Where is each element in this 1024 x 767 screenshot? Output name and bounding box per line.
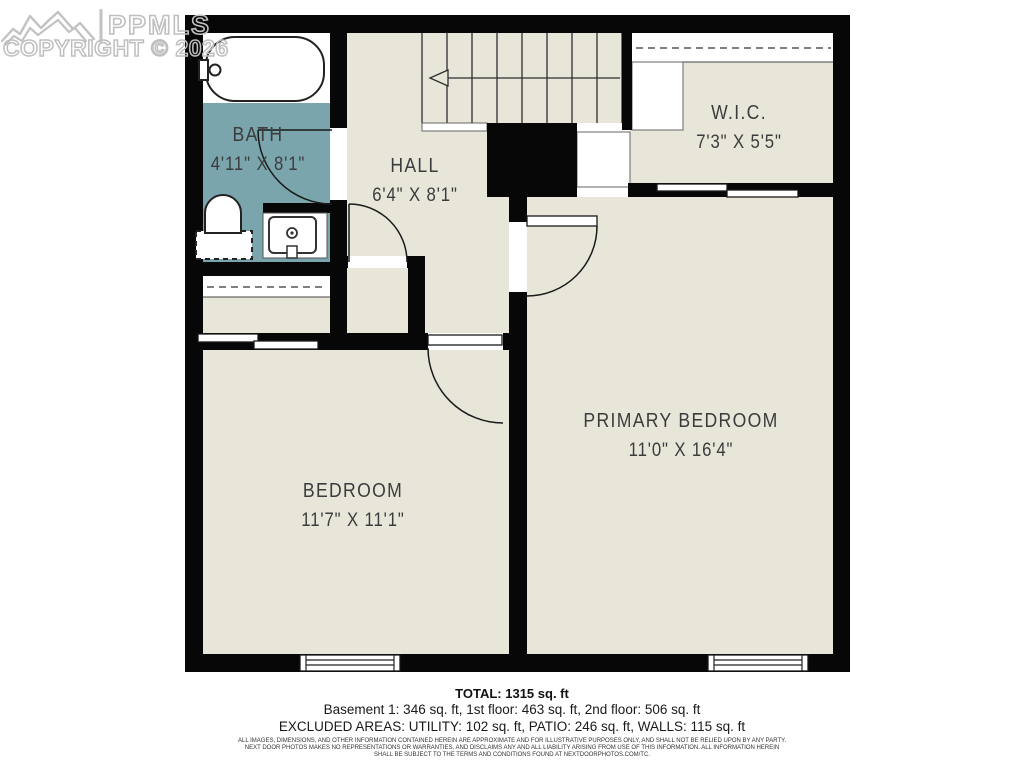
bedroom-name: BEDROOM xyxy=(301,477,404,506)
floorplan-page: BATH 4'11" X 8'1" HALL 6'4" X 8'1" W.I.C… xyxy=(0,0,1024,767)
stair-landing-box xyxy=(577,132,630,187)
wic-name: W.I.C. xyxy=(696,99,782,128)
bedroom-window xyxy=(300,655,400,671)
stair-cut-line xyxy=(422,123,487,131)
disclaimer-line-2: NEXT DOOR PHOTOS MAKES NO REPRESENTATION… xyxy=(0,745,1024,752)
bathtub-icon xyxy=(199,37,324,101)
sink-vanity-icon xyxy=(263,213,327,258)
disclaimer-line-1: ALL IMAGES, DIMENSIONS, AND OTHER INFORM… xyxy=(0,738,1024,745)
wic-bulkhead-box xyxy=(632,62,683,130)
room-label-bath: BATH 4'11" X 8'1" xyxy=(211,121,306,179)
wall-vanity-stub xyxy=(263,203,330,213)
primary-door-leaf xyxy=(527,216,597,226)
bedroom-door-leaf xyxy=(428,335,502,345)
bath-door-opening xyxy=(330,128,347,200)
wall-stairs-wic xyxy=(622,15,632,130)
room-label-wic: W.I.C. 7'3" X 5'5" xyxy=(696,99,782,157)
excluded-areas-line: EXCLUDED AREAS: UTILITY: 102 sq. ft, PAT… xyxy=(0,718,1024,735)
primary-bedroom-dimensions: 11'0" X 16'4" xyxy=(583,436,778,465)
room-label-hall: HALL 6'4" X 8'1" xyxy=(372,152,458,210)
total-area: TOTAL: 1315 sq. ft xyxy=(0,686,1024,701)
bedroom-dimensions: 11'7" X 11'1" xyxy=(301,506,404,535)
wall-top xyxy=(185,15,850,33)
wic-bypass-door-1 xyxy=(657,184,727,191)
closet-door-opening xyxy=(348,256,407,268)
wall-right xyxy=(833,15,850,672)
bedroom-closet-bypass-door-2 xyxy=(254,341,318,349)
area-summary: TOTAL: 1315 sq. ft Basement 1: 346 sq. f… xyxy=(0,686,1024,759)
primary-window xyxy=(708,655,808,671)
disclaimer-line-3: SHALL BE SUBJECT TO THE TERMS AND CONDIT… xyxy=(0,752,1024,759)
bath-dimensions: 4'11" X 8'1" xyxy=(211,150,306,179)
floorplan-drawing xyxy=(0,0,1024,767)
room-label-primary-bedroom: PRIMARY BEDROOM 11'0" X 16'4" xyxy=(583,407,778,465)
wic-bypass-door-2 xyxy=(727,190,798,197)
bedroom-closet-bypass-door-1 xyxy=(198,334,258,342)
chase-shaft xyxy=(487,123,577,197)
disclaimer: ALL IMAGES, DIMENSIONS, AND OTHER INFORM… xyxy=(0,738,1024,759)
hall-name: HALL xyxy=(372,152,458,181)
room-label-bedroom: BEDROOM 11'7" X 11'1" xyxy=(301,477,404,535)
hall-dimensions: 6'4" X 8'1" xyxy=(372,181,458,210)
wall-bath-bottom xyxy=(185,262,347,276)
primary-bedroom-name: PRIMARY BEDROOM xyxy=(583,407,778,436)
bath-name: BATH xyxy=(211,121,306,150)
bedroom-closet-floor xyxy=(203,297,330,333)
primary-door-opening xyxy=(509,222,527,292)
wic-dimensions: 7'3" X 5'5" xyxy=(696,128,782,157)
floor-areas-line: Basement 1: 346 sq. ft, 1st floor: 463 s… xyxy=(0,701,1024,718)
